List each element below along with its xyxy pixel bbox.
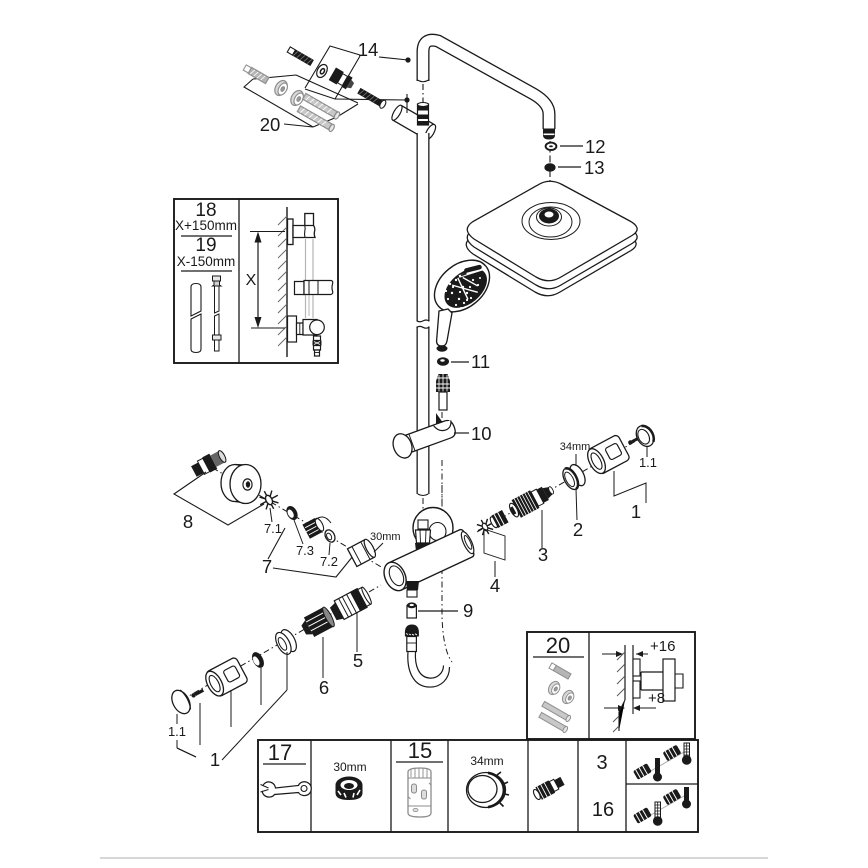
svg-text:19: 19 — [195, 235, 216, 256]
svg-text:7.3: 7.3 — [296, 543, 314, 558]
svg-text:7.2: 7.2 — [320, 554, 338, 569]
svg-text:20: 20 — [546, 633, 570, 658]
svg-text:17: 17 — [268, 740, 292, 765]
svg-text:X: X — [246, 272, 257, 289]
svg-text:6: 6 — [319, 677, 329, 698]
svg-text:34mm: 34mm — [560, 441, 591, 453]
svg-text:1: 1 — [210, 749, 220, 770]
svg-text:X+150mm: X+150mm — [175, 218, 237, 233]
svg-text:10: 10 — [471, 423, 492, 444]
svg-text:9: 9 — [463, 600, 473, 621]
svg-text:34mm: 34mm — [470, 754, 503, 768]
svg-text:13: 13 — [584, 157, 605, 178]
svg-text:5: 5 — [353, 650, 363, 671]
svg-text:16: 16 — [592, 799, 614, 821]
svg-text:11: 11 — [471, 351, 490, 372]
svg-text:14: 14 — [358, 39, 379, 60]
svg-text:30mm: 30mm — [333, 760, 366, 774]
svg-text:20: 20 — [260, 114, 281, 135]
svg-text:7: 7 — [262, 556, 272, 577]
svg-text:30mm: 30mm — [370, 531, 401, 543]
svg-text:7.1: 7.1 — [264, 521, 282, 536]
svg-text:3: 3 — [538, 544, 548, 565]
svg-text:1: 1 — [631, 501, 641, 522]
svg-text:15: 15 — [408, 738, 432, 763]
svg-text:4: 4 — [490, 575, 500, 596]
svg-text:+8: +8 — [648, 690, 665, 707]
svg-text:3: 3 — [596, 752, 607, 774]
svg-text:2: 2 — [573, 519, 583, 540]
svg-text:12: 12 — [585, 136, 606, 157]
svg-text:+16: +16 — [650, 638, 675, 655]
svg-text:X-150mm: X-150mm — [177, 254, 236, 269]
svg-text:1.1: 1.1 — [168, 724, 186, 739]
svg-text:8: 8 — [183, 511, 193, 532]
svg-text:1.1: 1.1 — [639, 455, 657, 470]
